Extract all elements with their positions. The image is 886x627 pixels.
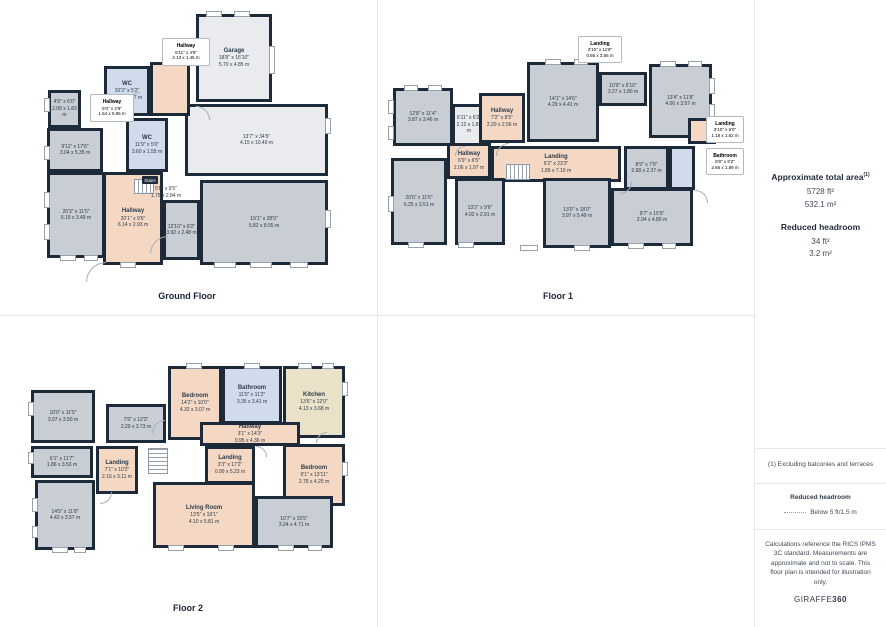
window-mark <box>32 526 38 538</box>
room-label: WC11'9" x 5'0"3.60 x 1.55 m <box>132 135 162 156</box>
room-name: Kitchen <box>299 392 329 400</box>
room-label: Bathroom11'0" x 11'2"3.35 x 3.41 m <box>237 385 267 406</box>
window-mark <box>244 363 260 369</box>
sidebar-section-divider-2 <box>755 483 886 484</box>
window-mark <box>84 255 98 261</box>
legend-row: Below 5 ft/1.5 m <box>755 509 886 516</box>
room-label: 13'2" x 9'6"4.02 x 2.91 m <box>465 205 495 218</box>
room-dims-m: 3.92 x 2.48 m <box>166 230 196 237</box>
sidebar-section-divider-3 <box>755 529 886 530</box>
room-label: Landing7'1" x 10'2"2.16 x 3.11 m <box>102 460 132 481</box>
room-label: Hallway20'1" x 9'6"6.14 x 2.93 m <box>118 208 148 229</box>
total-area-ft: 5728 ft² <box>755 186 886 199</box>
room-dims-ft: 14'1" x 14'6" <box>548 96 578 103</box>
legend-title: Reduced headroom <box>755 494 886 501</box>
room-label: Bedroom9'1" x 13'11"2.78 x 4.25 m <box>299 465 329 486</box>
room-dims-m: 1.89 x 7.10 m <box>541 168 571 175</box>
room-dims-ft: 11'0" x 11'2" <box>237 392 267 399</box>
window-mark <box>688 61 702 67</box>
reduced-headroom-title: Reduced headroom <box>755 222 886 232</box>
room-label: 12'10" x 8'2"3.92 x 2.48 m <box>166 224 196 237</box>
window-mark <box>269 46 275 74</box>
room: Hallway3'1" x 14'3"0.95 x 4.36 m <box>200 422 300 446</box>
room-label: 12'8" x 11'4"3.87 x 3.46 m <box>408 111 438 124</box>
floor-title: Floor 1 <box>543 291 573 301</box>
room-callout: Landing3'10" x 6'0"1.18 x 1.82 m <box>706 116 744 143</box>
room-dims-m: 2.20 x 2.56 m <box>487 122 517 129</box>
room-name: WC <box>132 135 162 143</box>
window-mark <box>388 196 394 212</box>
room-label: Landing3'3" x 17'2"0.99 x 5.23 m <box>215 455 245 476</box>
room-label: 13'4" x 11'8"4.06 x 3.57 m <box>665 95 695 108</box>
room-label: Garage18'8" x 16'10"5.70 x 4.85 m <box>219 48 249 69</box>
room-name: WC <box>112 81 142 89</box>
room-dims-ft: 10'0" x 11'5" <box>48 410 78 417</box>
room-dims-ft: 7'2" x 8'5" <box>487 115 517 122</box>
window-mark <box>206 11 222 17</box>
room-label: 9'11" x 17'6"3.04 x 5.35 m <box>60 144 90 157</box>
room-label: Hallway3'1" x 14'3"0.95 x 4.36 m <box>235 424 265 445</box>
window-mark <box>342 382 348 396</box>
room: 19'1" x 28'0"5.82 x 8.55 m <box>200 180 328 265</box>
room: Bathroom11'0" x 11'2"3.35 x 3.41 m <box>222 366 282 424</box>
window-mark <box>404 85 418 91</box>
sidebar-section-divider-1 <box>755 448 886 449</box>
room-dims-ft: 10'7" x 15'5" <box>279 516 309 523</box>
room-dims-ft: 10'9" x 5'10" <box>608 83 638 90</box>
room-name: Living Room <box>186 505 222 513</box>
room-label: Landing6'2" x 23'3"1.89 x 7.10 m <box>541 154 571 175</box>
room-dims-m: 4.06 x 3.57 m <box>665 101 695 108</box>
window-mark <box>660 61 676 67</box>
room-dims-ft: 7'1" x 10'2" <box>102 467 132 474</box>
window-mark <box>308 545 322 551</box>
room-label: 20'3" x 11'5"6.19 x 3.49 m <box>61 209 91 222</box>
room-name: Hallway <box>235 424 265 432</box>
footnote: (1) Excluding balconies and terraces <box>755 461 886 468</box>
giraffe360-logo: GIRAFFE360 <box>755 595 886 604</box>
logo-text-bold: 360 <box>832 595 847 604</box>
room-dims-m: 0.95 x 4.36 m <box>235 438 265 445</box>
dashed-line-icon <box>784 512 806 513</box>
room-dims-ft: 11'9" x 5'0" <box>132 142 162 149</box>
callout-dims-m: 2.66 x 1.89 m <box>711 165 738 171</box>
window-mark <box>44 146 50 160</box>
window-mark <box>120 262 136 268</box>
window-mark <box>250 262 272 268</box>
window-mark <box>325 118 331 134</box>
room-dims-m: 4.29 x 4.41 m <box>548 102 578 109</box>
room-dims-ft: 13'0" x 18'0" <box>562 207 592 214</box>
room: 14'1" x 14'6"4.29 x 4.41 m <box>527 62 599 142</box>
room <box>150 62 190 116</box>
room-callout: Landing2'10" x 11'8"0.86 x 3.56 m <box>578 36 622 63</box>
door-arc <box>496 143 509 156</box>
room: 20'6" x 11'6"6.25 x 3.51 m <box>391 158 447 245</box>
window-mark <box>709 78 715 94</box>
room-label: 7'6" x 12'3"2.29 x 3.73 m <box>121 417 151 430</box>
room: 13'2" x 9'6"4.02 x 2.91 m <box>455 178 505 245</box>
window-mark <box>234 11 250 17</box>
room-dims-ft: 13'2" x 9'6" <box>465 205 495 212</box>
window-mark <box>520 245 538 251</box>
room-dims-ft: 9'11" x 17'6" <box>60 144 90 151</box>
door-arc <box>695 190 708 203</box>
door-arc <box>86 262 106 282</box>
window-mark <box>214 262 236 268</box>
room-label: 9'7" x 15'9"2.94 x 4.80 m <box>637 211 667 224</box>
room: Landing7'1" x 10'2"2.16 x 3.11 m <box>96 446 138 494</box>
room-label: 4'9" x 6'0"2.08 x 1.83 m <box>51 99 78 119</box>
room-callout: Bathroom8'8" x 6'2"2.66 x 1.89 m <box>706 148 744 175</box>
grid-divider-horizontal <box>0 315 754 316</box>
room-name: Landing <box>102 460 132 468</box>
room: Living Room13'5" x 19'1"4.10 x 5.81 m <box>153 482 255 548</box>
window-mark <box>662 243 676 249</box>
room: Landing3'3" x 17'2"0.99 x 5.23 m <box>205 446 255 484</box>
room-label: Living Room13'5" x 19'1"4.10 x 5.81 m <box>186 505 222 526</box>
room-dims-m: 4.10 x 5.81 m <box>186 519 222 526</box>
room-dims-m: 3.04 x 5.35 m <box>60 150 90 157</box>
room-dims-ft: 3'1" x 14'3" <box>235 431 265 438</box>
legend-label: Below 5 ft/1.5 m <box>810 509 857 516</box>
reduced-headroom-ft: 34 ft² <box>755 236 886 249</box>
room-dims-m: 4.02 x 2.91 m <box>465 212 495 219</box>
room-dims-m: 3.07 x 3.50 m <box>48 417 78 424</box>
total-area-m: 532.1 m² <box>755 199 886 212</box>
callout-dims-m: 1.54 x 0.86 m <box>98 111 125 117</box>
room-dims-ft: 20'1" x 9'6" <box>118 216 148 223</box>
room: 6'1" x 11'7"1.86 x 3.53 m <box>31 446 93 478</box>
window-mark <box>322 363 334 369</box>
room-dims-ft: 12'10" x 8'2" <box>166 224 196 231</box>
room-dims-ft: 13'6" x 12'0" <box>299 399 329 406</box>
room: 9'7" x 15'9"2.94 x 4.80 m <box>611 188 693 246</box>
floorplan-canvas: Garage18'8" x 16'10"5.70 x 4.85 m13'7" x… <box>0 0 886 627</box>
room-dims-ft: 6'2" x 23'3" <box>541 161 571 168</box>
total-area-title-text: Approximate total area <box>771 172 863 182</box>
room-callout: Hallway6'11" x 4'9"2.13 x 1.45 m <box>162 38 210 66</box>
window-mark <box>428 85 442 91</box>
window-mark <box>186 363 202 369</box>
room-dims-ft: 3'3" x 17'2" <box>215 462 245 469</box>
room: 10'9" x 5'10"3.27 x 1.80 m <box>599 72 647 106</box>
room-name: Landing <box>541 154 571 162</box>
window-mark <box>278 545 294 551</box>
room-dims-m: 4.32 x 3.07 m <box>180 407 210 414</box>
door-arc <box>256 446 267 457</box>
room-dims-m: 2.16 x 3.11 m <box>102 474 132 481</box>
room: Hallway6'9" x 6'5"2.06 x 1.97 m <box>447 143 491 179</box>
room: 10'0" x 11'5"3.07 x 3.50 m <box>31 390 95 443</box>
room-dims-ft: 12'8" x 11'4" <box>408 111 438 118</box>
total-area-title: Approximate total area(1) <box>755 172 886 182</box>
room-dims-ft: 13'4" x 11'8" <box>665 95 695 102</box>
window-mark <box>52 547 68 553</box>
floor-title: Floor 2 <box>173 603 203 613</box>
room: 20'3" x 11'5"6.19 x 3.49 m <box>47 172 105 258</box>
room-dims-m: 3.24 x 4.71 m <box>279 522 309 529</box>
room-dims-ft: 6'1" x 11'7" <box>47 456 77 463</box>
room-dims-m: 6.19 x 3.49 m <box>61 215 91 222</box>
window-mark <box>458 242 474 248</box>
room: 10'7" x 15'5"3.24 x 4.71 m <box>255 496 333 548</box>
room-dims-ft: 18'8" x 16'10" <box>219 55 249 62</box>
window-mark <box>28 402 34 416</box>
room-dims-ft: 4'9" x 6'0" <box>51 99 78 106</box>
room-dims-m: 2.94 x 4.80 m <box>637 217 667 224</box>
room-label: 8'9" x 7'9"2.68 x 2.37 m <box>631 162 661 175</box>
room-dims-m: 5.82 x 8.55 m <box>249 223 279 230</box>
room-dims-m: 6.25 x 3.51 m <box>404 202 434 209</box>
window-mark <box>28 452 34 464</box>
window-mark <box>628 243 644 249</box>
room: 9'11" x 17'6"3.04 x 5.35 m <box>47 128 103 172</box>
room-dims-m: 0.99 x 5.23 m <box>215 469 245 476</box>
room-dims-m: 4.15 x 10.49 m <box>240 140 273 147</box>
window-mark <box>44 224 50 240</box>
room-label: 19'1" x 28'0"5.82 x 8.55 m <box>249 216 279 229</box>
room-label: Hallway7'2" x 8'5"2.20 x 2.56 m <box>487 108 517 129</box>
room: 12'10" x 8'2"3.92 x 2.48 m <box>163 200 200 260</box>
room-dims-m: 1.86 x 3.53 m <box>47 462 77 469</box>
room-dims-ft: 13'7" x 34'5" <box>240 134 273 141</box>
window-mark <box>545 59 561 65</box>
window-mark <box>408 242 424 248</box>
room: 12'8" x 11'4"3.87 x 3.46 m <box>393 88 453 146</box>
grid-divider-vertical-mid <box>377 0 378 627</box>
window-mark <box>388 100 394 114</box>
room-dims-m: 2.06 x 1.97 m <box>454 165 484 172</box>
window-mark <box>168 545 184 551</box>
logo-text: GIRAFFE <box>794 595 832 604</box>
callout-dims-m: 2.13 x 1.45 m <box>172 55 199 61</box>
window-mark <box>342 462 348 476</box>
room-label: Kitchen13'6" x 12'0"4.13 x 3.68 m <box>299 392 329 413</box>
room-dims-m: 6.14 x 2.93 m <box>118 222 148 229</box>
room-dims-m: 3.97 x 5.49 m <box>562 213 592 220</box>
stairs <box>148 448 168 474</box>
room-dims-m: 2.68 x 2.37 m <box>631 168 661 175</box>
room-callout: Hallway5'0" x 2'9"1.54 x 0.86 m <box>90 94 134 122</box>
room-dims-m: 2.29 x 3.73 m <box>121 424 151 431</box>
floor-title: Ground Floor <box>158 291 216 301</box>
room-dims-m: 3.27 x 1.80 m <box>608 89 638 96</box>
stairs <box>506 164 530 180</box>
room: WC11'9" x 5'0"3.60 x 1.55 m <box>126 118 168 172</box>
sidebar: Approximate total area(1) 5728 ft² 532.1… <box>755 0 886 627</box>
room-name: Bedroom <box>180 393 210 401</box>
room-dims-m: 2.78 x 4.25 m <box>299 479 329 486</box>
room-label: 10'9" x 5'10"3.27 x 1.80 m <box>608 83 638 96</box>
door-arc <box>100 492 112 504</box>
area-summary: Approximate total area(1) 5728 ft² 532.1… <box>755 172 886 261</box>
room-name: Bathroom <box>237 385 267 393</box>
room-dims-ft: 7'6" x 12'3" <box>121 417 151 424</box>
room-dims-ft: 13'5" x 19'1" <box>186 512 222 519</box>
room-dims-ft: 9'7" x 15'9" <box>637 211 667 218</box>
room-dims-ft: 8'9" x 7'9" <box>631 162 661 169</box>
total-area-footnote-ref: (1) <box>864 172 870 178</box>
room-dims-m: 4.13 x 3.68 m <box>299 406 329 413</box>
room-name: Landing <box>215 455 245 463</box>
room-dims-m: 2.08 x 1.83 m <box>51 106 78 119</box>
window-mark <box>74 547 86 553</box>
window-mark <box>388 126 394 140</box>
window-mark <box>60 255 76 261</box>
room-label: 10'0" x 11'5"3.07 x 3.50 m <box>48 410 78 423</box>
room-name: Bedroom <box>299 465 329 473</box>
window-mark <box>574 245 590 251</box>
room-label: 13'7" x 34'5"4.15 x 10.49 m <box>240 134 273 147</box>
room-label: 14'5" x 11'8"4.42 x 3.57 m <box>50 509 80 522</box>
room: 4'9" x 6'0"2.08 x 1.83 m <box>48 90 81 128</box>
room-dims-m: 4.42 x 3.57 m <box>50 515 80 522</box>
room: 14'5" x 11'8"4.42 x 3.57 m <box>35 480 95 550</box>
reduced-headroom-m: 3.2 m² <box>755 248 886 261</box>
callout-dims-m: 1.18 x 1.82 m <box>711 133 738 139</box>
room-label: 6'1" x 11'7"1.86 x 3.53 m <box>47 456 77 469</box>
room-label: 10'7" x 15'5"3.24 x 4.71 m <box>279 516 309 529</box>
room-dims-m: 3.87 x 3.46 m <box>408 117 438 124</box>
room-dims-ft: 14'5" x 11'8" <box>50 509 80 516</box>
dims-dims-m: 1.75 x 2.84 m <box>145 193 187 200</box>
room-dims-ft: 20'3" x 11'5" <box>61 209 91 216</box>
room-dims-m: 5.70 x 4.85 m <box>219 62 249 69</box>
room-dims-ft: 14'2" x 10'0" <box>180 400 210 407</box>
stairs-badge: Stairs <box>142 176 158 184</box>
room-dims-m: 3.60 x 1.55 m <box>132 149 162 156</box>
room-name: Hallway <box>118 208 148 216</box>
room-dims-ft: 6'9" x 6'5" <box>454 158 484 165</box>
room-name: Hallway <box>487 108 517 116</box>
room: Hallway7'2" x 8'5"2.20 x 2.56 m <box>479 93 525 143</box>
window-mark <box>218 545 234 551</box>
dims-label: 5'8" x 9'5"1.75 x 2.84 m <box>145 186 187 199</box>
room-label: 13'0" x 18'0"3.97 x 5.49 m <box>562 207 592 220</box>
callout-dims-m: 0.86 x 3.56 m <box>586 53 613 59</box>
window-mark <box>44 98 50 112</box>
room-dims-ft: 20'6" x 11'6" <box>404 195 434 202</box>
window-mark <box>298 363 312 369</box>
room <box>669 146 695 190</box>
room-label: 20'6" x 11'6"6.25 x 3.51 m <box>404 195 434 208</box>
room-label: 14'1" x 14'6"4.29 x 4.41 m <box>548 96 578 109</box>
room-name: Garage <box>219 48 249 56</box>
window-mark <box>44 192 50 208</box>
window-mark <box>290 262 308 268</box>
window-mark <box>325 210 331 228</box>
room-label: Bedroom14'2" x 10'0"4.32 x 3.07 m <box>180 393 210 414</box>
room: 13'0" x 18'0"3.97 x 5.49 m <box>543 178 611 248</box>
room-dims-ft: 9'1" x 13'11" <box>299 472 329 479</box>
disclaimer-text: Calculations reference the RICS IPMS 3C … <box>765 540 876 587</box>
room-dims-ft: 19'1" x 28'0" <box>249 216 279 223</box>
room-dims-m: 3.35 x 3.41 m <box>237 399 267 406</box>
window-mark <box>32 498 38 512</box>
